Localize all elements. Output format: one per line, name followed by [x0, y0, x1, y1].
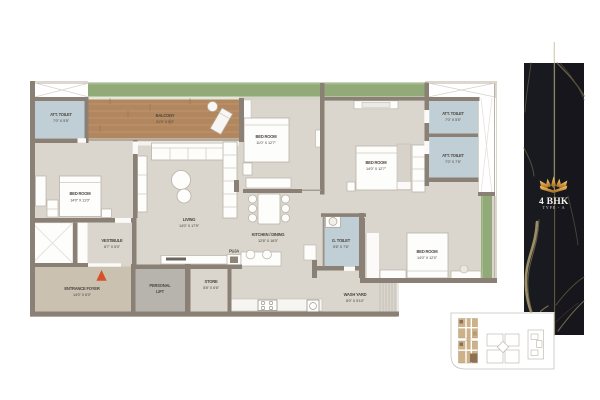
svg-text:ATT. TOILET: ATT. TOILET	[442, 153, 464, 158]
svg-text:G. TOILET: G. TOILET	[332, 238, 351, 243]
svg-text:8'0" X 5'10": 8'0" X 5'10"	[346, 299, 365, 303]
svg-text:ATT. TOILET: ATT. TOILET	[442, 111, 464, 116]
svg-text:7'0" X 5'5": 7'0" X 5'5"	[445, 118, 462, 122]
svg-text:BED ROOM: BED ROOM	[256, 134, 278, 139]
svg-text:BALCONY: BALCONY	[156, 113, 175, 118]
svg-text:14'0" X 12'0": 14'0" X 12'0"	[417, 256, 438, 260]
svg-text:STORE: STORE	[204, 279, 217, 284]
svg-text:TYPE - A: TYPE - A	[542, 205, 565, 210]
svg-text:21'0" X 5'0": 21'0" X 5'0"	[156, 120, 175, 124]
svg-text:14'0" X 6'0": 14'0" X 6'0"	[73, 293, 92, 297]
svg-text:14'0" X 17'9": 14'0" X 17'9"	[179, 224, 200, 228]
svg-text:BED ROOM: BED ROOM	[417, 249, 439, 254]
svg-text:5'6" X 7'6": 5'6" X 7'6"	[333, 245, 350, 249]
svg-text:ENTRANCE FOYER: ENTRANCE FOYER	[64, 286, 99, 291]
svg-text:LIFT: LIFT	[156, 289, 165, 294]
svg-text:KITCHEN / DINING: KITCHEN / DINING	[252, 232, 285, 237]
svg-text:5'8" X 6'6": 5'8" X 6'6"	[203, 286, 220, 290]
svg-text:14'0" X 11'0": 14'0" X 11'0"	[70, 199, 90, 203]
svg-text:BED ROOM: BED ROOM	[366, 160, 388, 165]
svg-text:11'0" X 12'7": 11'0" X 12'7"	[256, 141, 276, 145]
svg-text:LIVING: LIVING	[183, 217, 195, 222]
svg-text:PERSONAL: PERSONAL	[149, 283, 171, 288]
svg-text:WASH YARD: WASH YARD	[344, 292, 367, 297]
svg-text:ATT. TOILET: ATT. TOILET	[50, 112, 72, 117]
svg-text:BED ROOM: BED ROOM	[70, 191, 92, 196]
svg-text:VESTIBULE: VESTIBULE	[101, 238, 123, 243]
svg-text:14'0" X 12'7": 14'0" X 12'7"	[366, 167, 387, 171]
svg-text:8'7" X 5'0": 8'7" X 5'0"	[104, 245, 121, 249]
svg-text:7'0" X 5'5": 7'0" X 5'5"	[53, 119, 70, 123]
svg-text:7'0" X 7'5": 7'0" X 7'5"	[445, 160, 462, 164]
svg-text:PUJA: PUJA	[229, 249, 239, 254]
svg-text:12'6" X 16'0": 12'6" X 16'0"	[258, 239, 279, 243]
